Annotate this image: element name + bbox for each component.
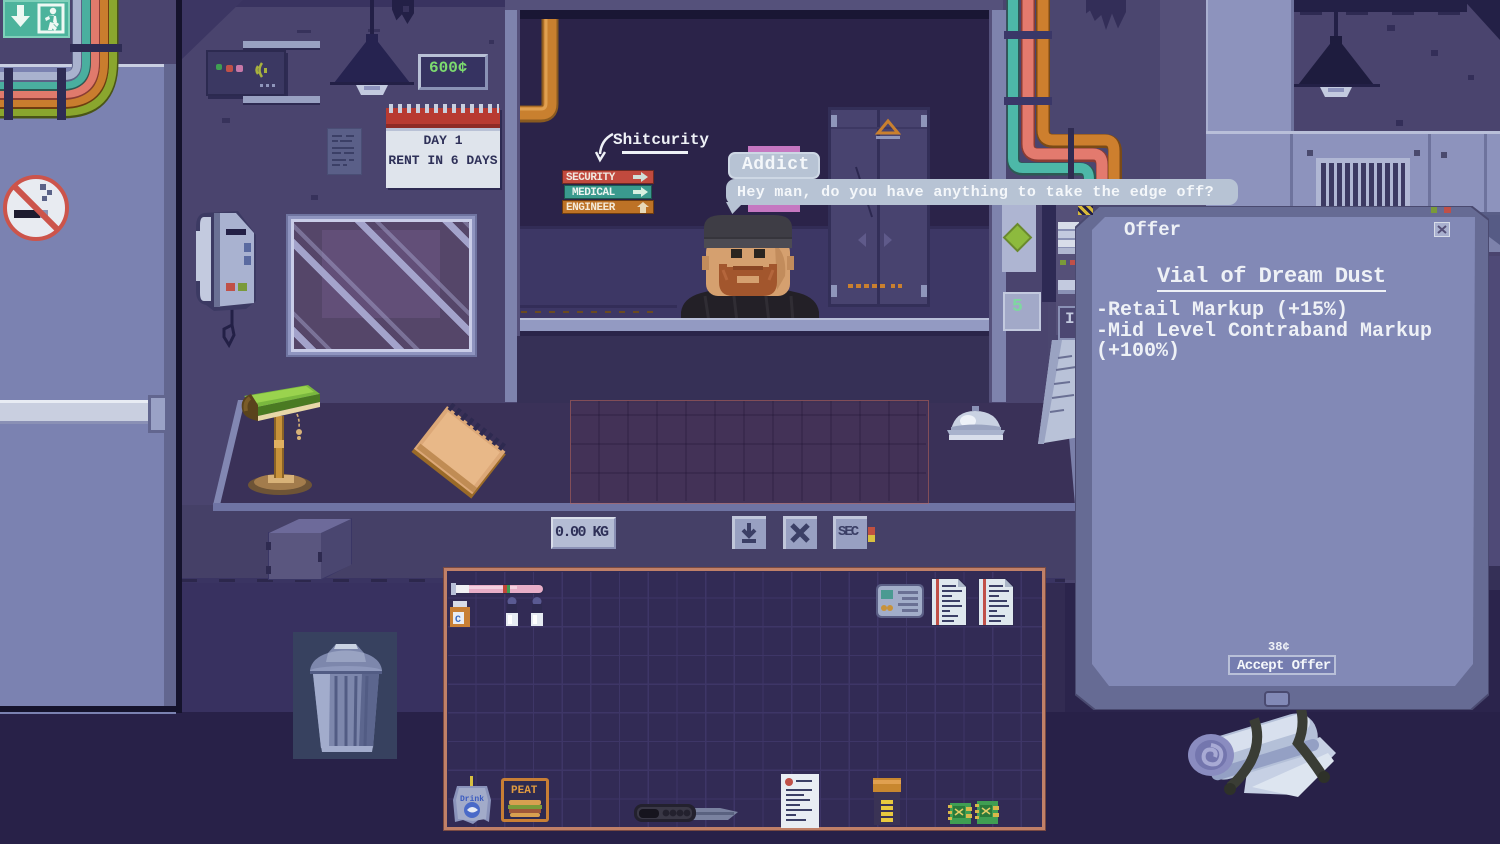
svg-text:C: C [455,615,461,626]
svg-text:PEAT: PEAT [511,785,538,797]
